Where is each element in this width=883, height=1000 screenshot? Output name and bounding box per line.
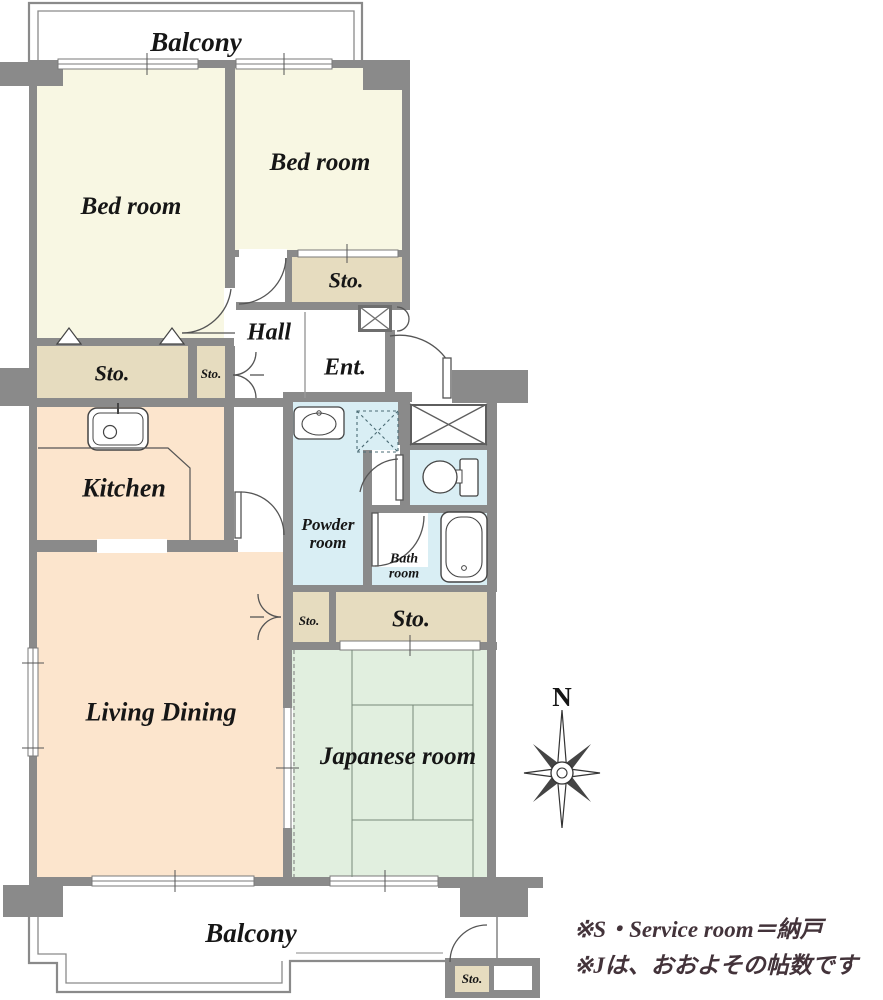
opening-bedroom-left-door (224, 288, 236, 338)
label-storage-mid-large: Sto. (392, 607, 430, 632)
wall-right-upper (402, 60, 410, 310)
wall-storage-bedroom-right-left (285, 257, 292, 302)
label-powder-room: Powder room (302, 516, 355, 552)
door-bedroom-right (239, 258, 286, 304)
wall-right-mid (487, 400, 497, 592)
label-bath-room: Bath room (389, 552, 419, 581)
wall-block-top-right (363, 60, 410, 90)
label-compass-north: N (552, 683, 572, 711)
wall-below-pillar (385, 330, 395, 394)
label-balcony-bottom: Balcony (205, 919, 297, 947)
wall-top (29, 60, 410, 68)
wall-powder-closet-divider (398, 400, 410, 445)
label-bedroom-right: Bed room (270, 150, 371, 176)
label-storage-left-small: Sto. (201, 367, 222, 381)
wall-below-storage-row (283, 642, 497, 650)
label-japanese-room: Japanese room (320, 744, 476, 770)
wall-bedroom-left-bottom (29, 338, 234, 346)
room-toilet (410, 450, 487, 505)
wall-block-bottom-left (3, 885, 63, 917)
label-bath-room-line2: room (389, 567, 419, 582)
wall-entrance-block (452, 370, 528, 403)
label-bedroom-left: Bed room (81, 194, 182, 220)
label-storage-bottom: Sto. (462, 972, 483, 986)
wall-ld-japanese-top (283, 650, 292, 708)
door-entrance (390, 307, 451, 398)
wall-storage-left-divider (188, 346, 197, 398)
room-powder-top (292, 402, 398, 450)
wall-block-top-left (0, 62, 63, 86)
wall-kitchen-right (224, 407, 234, 540)
label-kitchen: Kitchen (82, 474, 166, 501)
wall-ld-japanese-bottom (283, 828, 292, 877)
label-powder-room-line1: Powder (302, 516, 355, 534)
wall-storage-mid-divider (329, 592, 336, 642)
label-powder-room-line2: room (302, 534, 355, 552)
wall-japanese-right (487, 592, 496, 877)
wall-left (29, 60, 37, 885)
label-storage-bedroom-right: Sto. (329, 268, 364, 291)
wall-toilet-bath-divider (363, 505, 487, 513)
note-service-room: ※S・Service room＝納戸 (574, 910, 823, 944)
label-storage-mid-small: Sto. (299, 614, 320, 628)
label-storage-left-large: Sto. (95, 361, 130, 384)
door-storage-bottom (450, 925, 487, 962)
label-balcony-top: Balcony (150, 28, 242, 56)
door-storage-left-small (233, 352, 264, 398)
label-entrance: Ent. (324, 355, 366, 380)
storage-bottom-white-cell (494, 966, 532, 990)
wall-toilet-left (400, 445, 410, 505)
wall-powder-right (363, 450, 372, 585)
wall-above-storage-row (283, 585, 497, 592)
wall-bedroom-right-bottom (234, 250, 410, 257)
label-bath-room-line1: Bath (389, 552, 419, 567)
note-tatami-count: ※Jは、おおよその帖数です (574, 946, 858, 980)
wall-storage-small-right (225, 346, 235, 398)
label-hall: Hall (247, 320, 291, 345)
label-living-dining: Living Dining (86, 698, 237, 725)
shoe-closet-box (410, 404, 487, 445)
floor-plan: Balcony Bed room Bed room Sto. Hall Ent.… (0, 0, 883, 1000)
wall-block-bottom-right (460, 877, 528, 917)
compass-icon (524, 710, 600, 828)
wall-kitchen-bottom (29, 540, 238, 552)
wall-storage-row-bottom (29, 398, 293, 407)
wall-corridor-right (283, 398, 293, 650)
pillar-box (358, 305, 392, 332)
door-living-corridor (235, 492, 284, 538)
